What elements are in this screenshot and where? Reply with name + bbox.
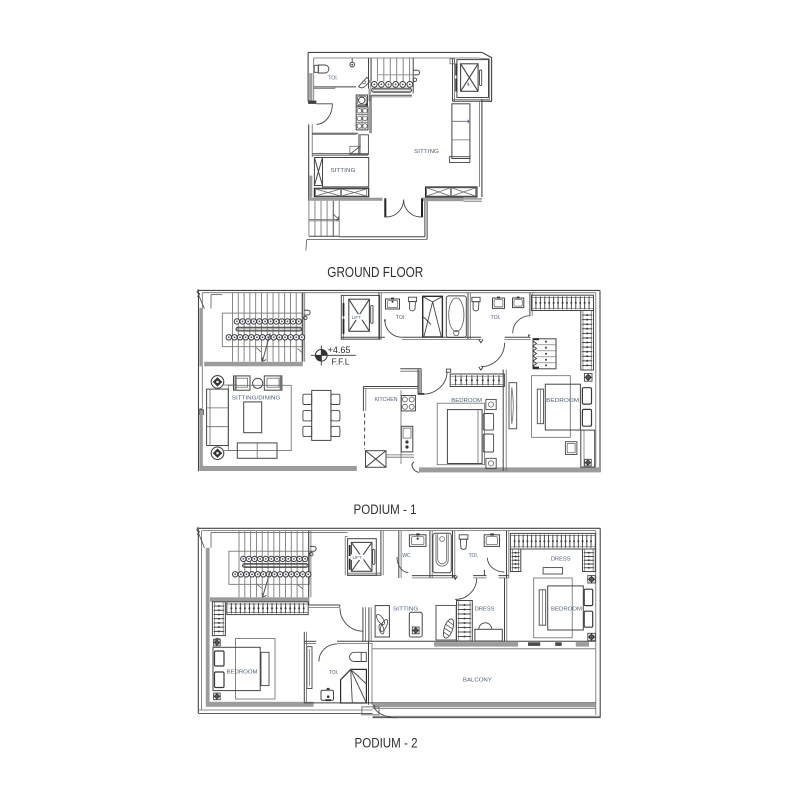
svg-text:PODIUM - 1: PODIUM - 1	[354, 502, 417, 518]
svg-text:WC: WC	[402, 553, 411, 559]
svg-text:+4.65: +4.65	[328, 345, 351, 355]
svg-text:KITCHEN: KITCHEN	[375, 397, 398, 403]
svg-text:TOI.: TOI.	[469, 553, 479, 559]
svg-text:TOI.: TOI.	[328, 75, 338, 81]
svg-text:PODIUM - 2: PODIUM - 2	[355, 736, 418, 752]
svg-text:SITTING/DINING: SITTING/DINING	[232, 396, 281, 402]
svg-text:F.F.L: F.F.L	[332, 357, 350, 367]
svg-text:SITTING: SITTING	[330, 168, 355, 174]
svg-text:TOI.: TOI.	[396, 315, 406, 321]
svg-text:DRESS: DRESS	[551, 557, 571, 563]
svg-text:TOI.: TOI.	[491, 315, 501, 321]
svg-text:SITTING: SITTING	[393, 607, 418, 613]
svg-text:BEDROOM: BEDROOM	[546, 398, 579, 404]
svg-text:GROUND FLOOR: GROUND FLOOR	[327, 265, 423, 281]
svg-text:LIFT: LIFT	[352, 555, 361, 560]
svg-text:TOI.: TOI.	[329, 670, 339, 676]
svg-text:BEDROOM: BEDROOM	[227, 670, 258, 676]
svg-text:LIFT: LIFT	[352, 315, 362, 320]
svg-text:BALCONY: BALCONY	[463, 678, 493, 684]
svg-text:DRESS: DRESS	[475, 606, 495, 612]
svg-text:BEDROOM: BEDROOM	[551, 606, 582, 612]
svg-text:SITTING: SITTING	[414, 149, 439, 155]
